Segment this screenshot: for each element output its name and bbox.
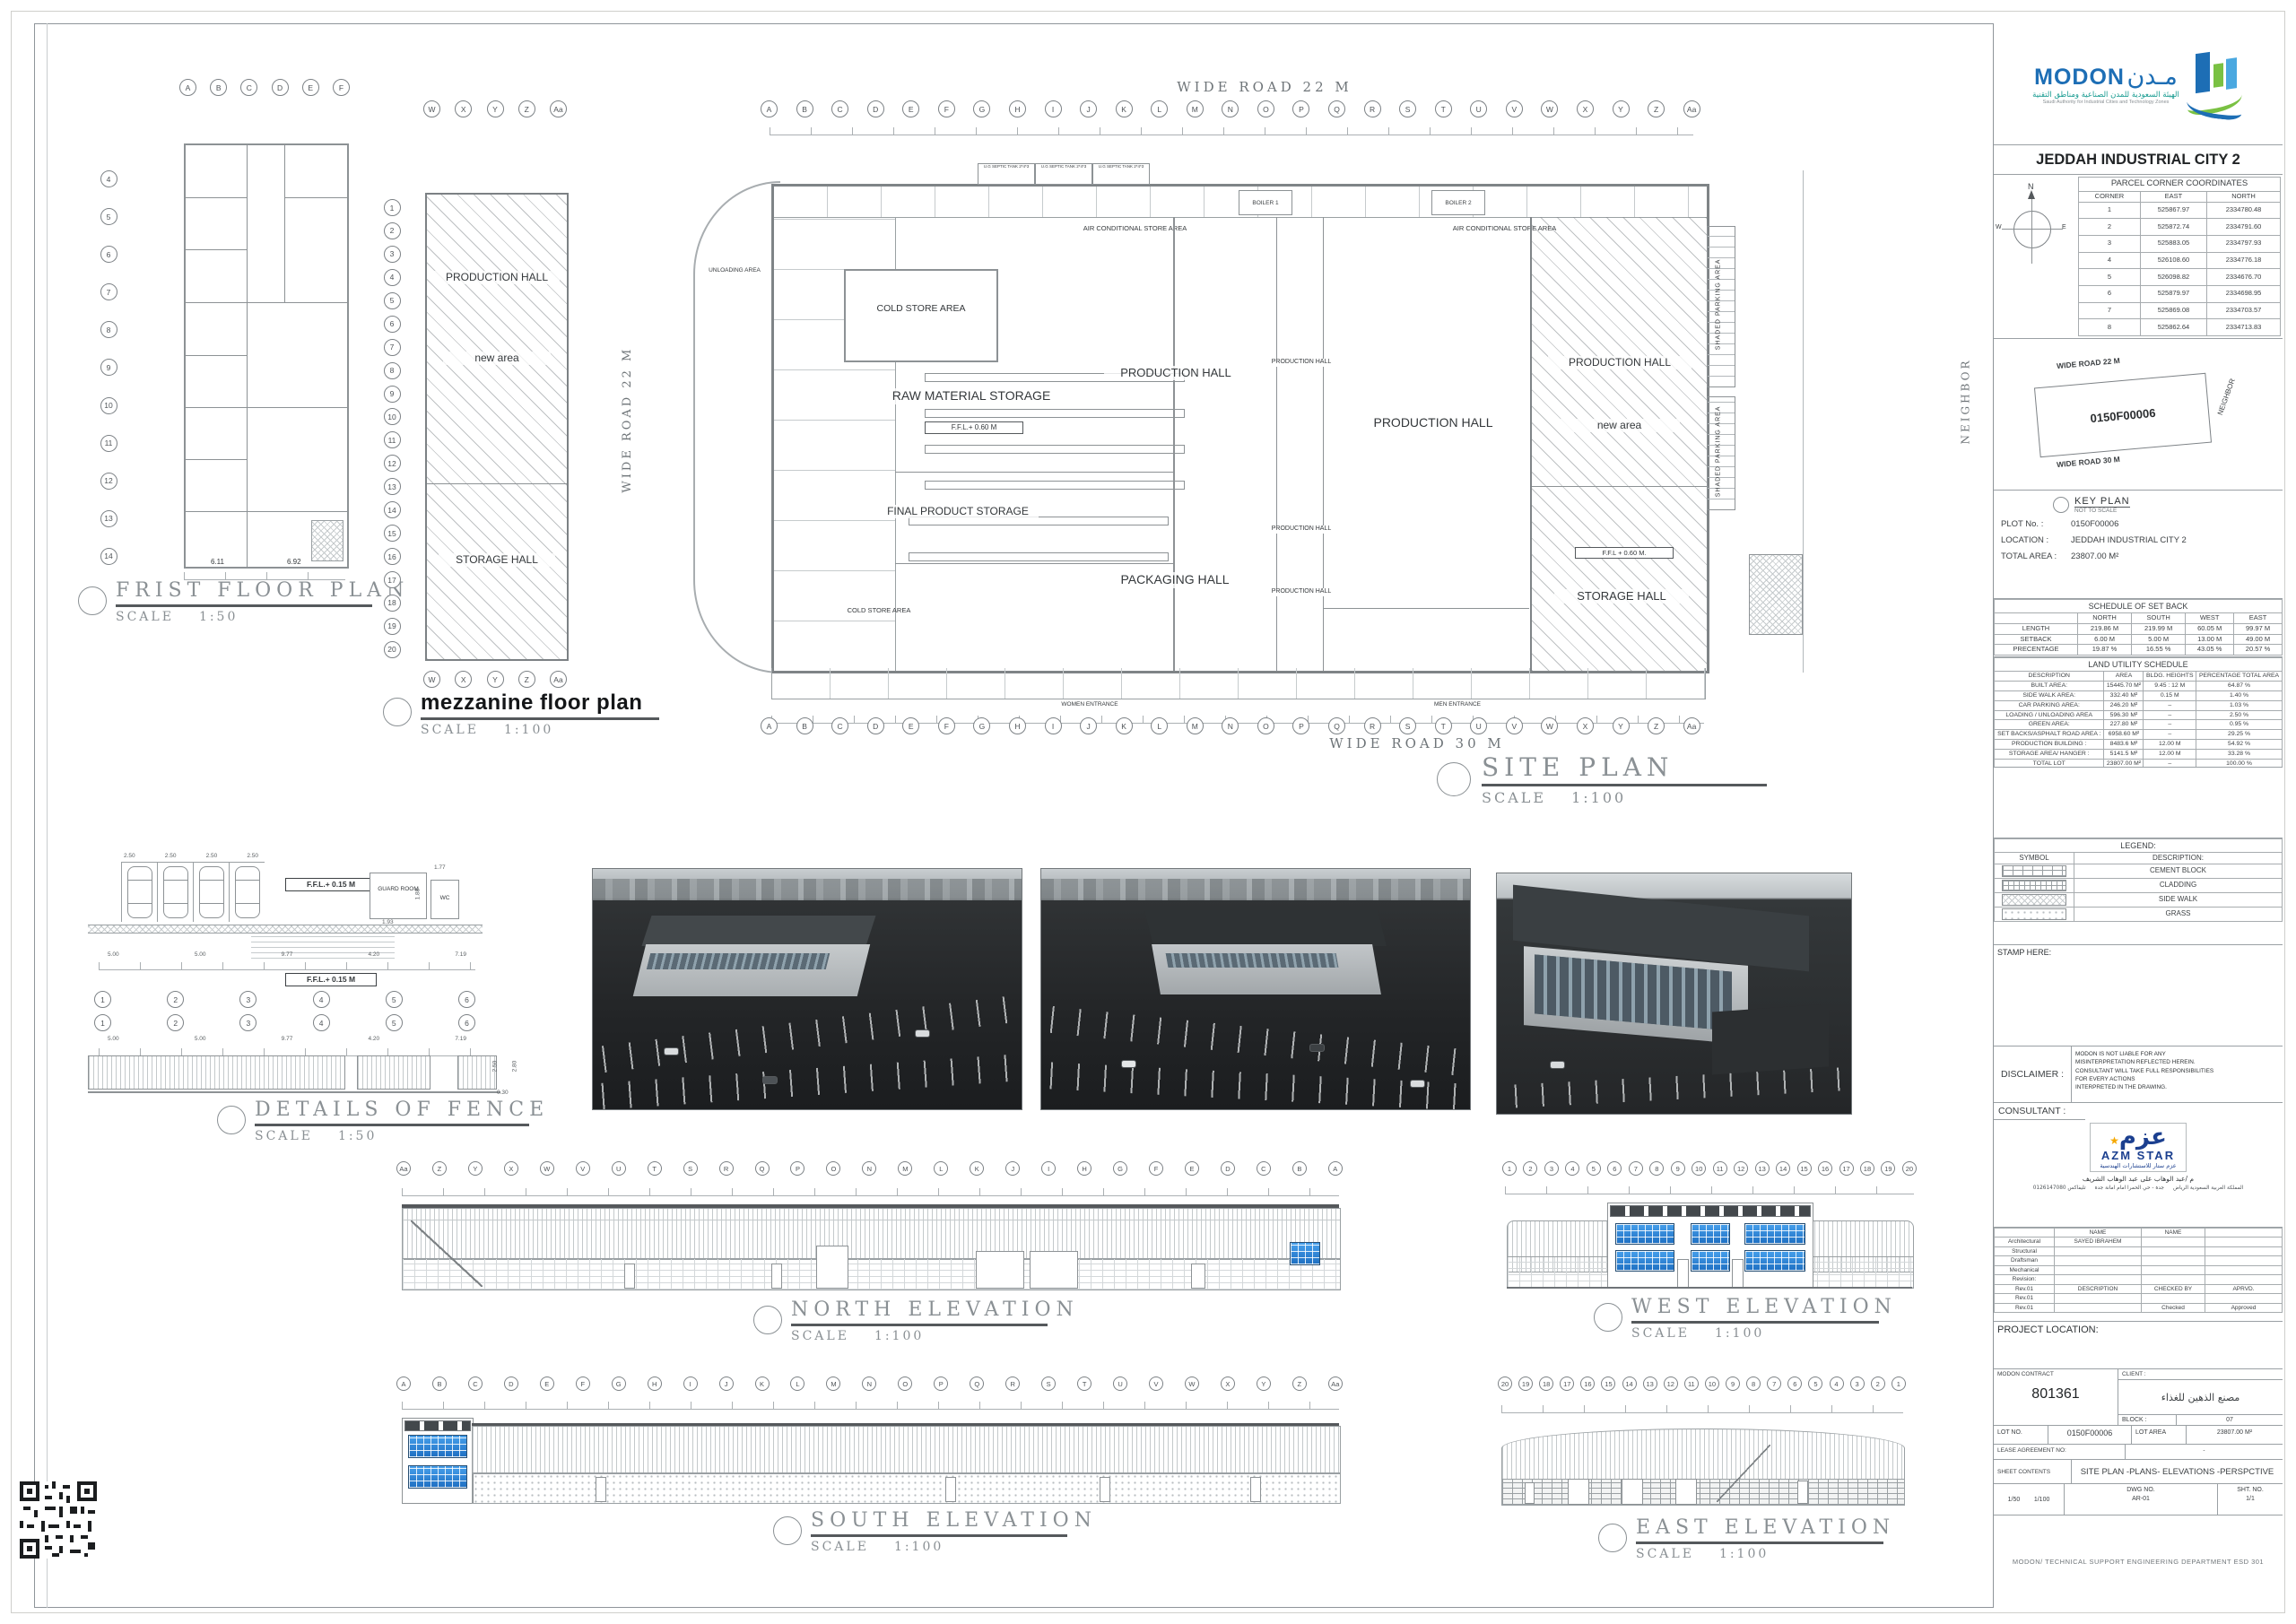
dwg-no-label: DWG NO. xyxy=(2065,1487,2217,1493)
mezz-storage-hall-label: STORAGE HALL xyxy=(439,553,555,567)
coordinate-row: 2525872.742334791.60 xyxy=(2079,219,2281,236)
boiler2-room: BOILER 2 xyxy=(1431,190,1485,215)
blank-section xyxy=(1994,768,2283,838)
land-utility-row: SIDE WALK AREA:332.40 M²0.15 M1.40 % xyxy=(1995,690,2283,700)
packaging-hall-label: PACKAGING HALL xyxy=(1090,572,1260,588)
coordinate-row: 7525869.082334703.57 xyxy=(2079,302,2281,319)
mezz-new-area-label: new area xyxy=(443,352,551,365)
modon-wordmark: MODON xyxy=(2034,65,2125,90)
storage-ffl: F.F.L + 0.60 M. xyxy=(1575,547,1674,559)
west-dim-line xyxy=(1505,1186,1914,1194)
south-building xyxy=(402,1418,1339,1504)
siteplan-hatched-band: PRODUCTION HALL new area F.F.L + 0.60 M.… xyxy=(1530,217,1709,671)
sht-no-label: SHT. NO. xyxy=(2218,1487,2283,1493)
panel xyxy=(976,1251,1024,1289)
siteplan-hatch-box xyxy=(1749,554,1803,635)
first-floor-plan-body xyxy=(184,143,349,569)
north-elevation-title: NORTH ELEVATION SCALE1:100 xyxy=(743,1300,1048,1343)
fence-title: DETAILS OF FENCE SCALE1:50 xyxy=(206,1100,529,1143)
lot-row: LOT NO. 0150F00006 LOT AREA 23807.00 M² xyxy=(1994,1426,2283,1445)
render-parking-lines xyxy=(1496,1066,1852,1109)
land-utility-row: BUILT AREA:15445.70 M²9.45 : 12 M64.87 % xyxy=(1995,682,2283,691)
final-product-label: FINAL PRODUCT STORAGE xyxy=(877,505,1039,518)
mezzanine-plan-title: mezzanine floor plan SCALE1:100 xyxy=(372,692,659,737)
raw-material-ffl: F.F.L.+ 0.60 M xyxy=(925,421,1023,434)
door xyxy=(596,1477,606,1502)
modon-contract-value: 801361 xyxy=(1994,1386,2118,1403)
names-section: NAMENAME ArchitecturalSAYED IBRAHEM Stru… xyxy=(1994,1228,2283,1322)
render-roof xyxy=(1144,910,1387,946)
mezz-production-hall-label: PRODUCTION HALL xyxy=(434,271,560,284)
neighbor-label: NEIGHBOR xyxy=(1960,352,1973,451)
legend-cement-block-swatch xyxy=(2002,865,2066,877)
panel xyxy=(816,1246,848,1289)
door xyxy=(945,1477,956,1502)
client-value: مصنع الذهين للغذاء xyxy=(2118,1380,2283,1414)
east-dim-line xyxy=(1501,1405,1903,1413)
east-stair xyxy=(1717,1445,1770,1502)
key-plan-road-bottom: WIDE ROAD 30 M xyxy=(2057,455,2120,469)
key-plan-info: KEY PLAN NOT TO SCALE PLOT No. :0150F000… xyxy=(1994,491,2283,599)
fence-dims-1: 5.005.009.774.207.19 xyxy=(108,951,466,958)
fence-dims-2: 5.005.009.774.207.19 xyxy=(108,1036,466,1042)
shaded-parking-strip-2: SHADED PARKING AREA xyxy=(1707,396,1735,510)
siteplan-road-bottom: WIDE ROAD 30 M xyxy=(1291,735,1543,752)
legend-grass-swatch xyxy=(2002,908,2066,920)
modon-wordmark-arabic: مـدن xyxy=(2126,63,2177,91)
client-label: CLIENT : xyxy=(2118,1369,2283,1380)
west-building xyxy=(1507,1203,1912,1289)
west-grid: 1234567891011121314151617181920 xyxy=(1502,1161,1917,1176)
car xyxy=(127,866,152,918)
key-plan-drawing: 0150F00006 WIDE ROAD 22 M WIDE ROAD 30 M… xyxy=(1994,339,2283,491)
ac-store-label-1: AIR CONDITIONAL STORE AREA xyxy=(1070,224,1200,232)
men-entrance-label: MEN ENTRANCE xyxy=(1422,701,1493,708)
contract-client-section: MODON CONTRACT 801361 CLIENT : مصنع الذه… xyxy=(1994,1369,2283,1426)
first-floor-plan-title: FRIST FLOOR PLAN SCALE1:50 xyxy=(67,581,372,624)
window-glass xyxy=(408,1435,467,1458)
render-skyline xyxy=(1041,879,1470,900)
key-plan-road-top: WIDE ROAD 22 M xyxy=(2057,356,2120,370)
render-car xyxy=(916,1030,929,1037)
title-block: MODON مـدن الهيئة السعودية للمدن الصناعي… xyxy=(1993,23,2283,1608)
lease-value: - xyxy=(2126,1445,2283,1459)
lot-area-label: LOT AREA xyxy=(2132,1426,2187,1444)
production-hall-small-3: PRODUCTION HALL xyxy=(1257,588,1346,596)
cold-store-room: COLD STORE AREA xyxy=(844,269,998,362)
legend-grass-label: GRASS xyxy=(2074,907,2283,921)
legend-side-walk-swatch xyxy=(2002,894,2066,906)
window-glass xyxy=(1744,1250,1805,1272)
coordinate-row: 1525867.972334780.48 xyxy=(2079,202,2281,219)
sht-no-value: 1/1 xyxy=(2218,1496,2283,1502)
coordinate-row: 4526108.602334776.18 xyxy=(2079,252,2281,269)
shaded-parking-strip-1: SHADED PARKING AREA xyxy=(1707,226,1735,387)
sheet-contents-row: SHEET CONTENTS SITE PLAN -PLANS- ELEVATI… xyxy=(1994,1460,2283,1484)
modon-contract-label: MODON CONTRACT xyxy=(1994,1369,2118,1379)
ffplan-grid-numbers: 4567891011121314 xyxy=(100,170,117,565)
key-plan-neighbor: NEIGHBOR xyxy=(2216,378,2237,416)
fence-detail: 2.502.502.502.50 F.F.L.+ 0.15 M GUARD RO… xyxy=(72,847,556,1148)
rack xyxy=(925,481,1185,490)
render-car xyxy=(1310,1045,1324,1051)
south-dim-line xyxy=(402,1402,1339,1410)
sheet-contents-label: SHEET CONTENTS xyxy=(1994,1460,2072,1483)
modon-subtitle-english: Saudi Authority for Industrial Cities an… xyxy=(2032,100,2179,105)
raw-material-label: RAW MATERIAL STORAGE xyxy=(882,388,1061,404)
scale-b: 1/100 xyxy=(2034,1497,2050,1503)
render-wall xyxy=(1152,944,1381,994)
legend-table: LEGEND: SYMBOLDESCRIPTION: CEMENT BLOCK … xyxy=(1994,838,2283,922)
door xyxy=(771,1264,782,1289)
window-glass xyxy=(408,1465,467,1489)
lot-area-value: 23807.00 M² xyxy=(2187,1426,2283,1444)
fence-ffl-1: F.F.L.+ 0.15 M xyxy=(285,878,377,891)
project-title: JEDDAH INDUSTRIAL CITY 2 xyxy=(1994,145,2283,175)
legend-cement-block-label: CEMENT BLOCK xyxy=(2074,864,2283,878)
car xyxy=(235,866,260,918)
perspective-render-1 xyxy=(592,868,1022,1110)
rack xyxy=(925,445,1185,454)
fence-bubbles-2: 123456 xyxy=(94,1014,475,1031)
names-table: NAMENAME ArchitecturalSAYED IBRAHEM Stru… xyxy=(1994,1228,2283,1313)
siteplan-dim-top xyxy=(770,127,1693,135)
plot-no-label: PLOT No. : xyxy=(2001,519,2071,529)
door xyxy=(1797,1481,1808,1504)
esd-note: MODON/ TECHNICAL SUPPORT ENGINEERING DEP… xyxy=(1994,1515,2283,1608)
north-elevation: AaZYXWVUTSRQPONMLKJIHGFEDCBA NORTH ELEVA… xyxy=(386,1161,1359,1354)
mezzanine-plan-body: PRODUCTION HALL new area STORAGE HALL xyxy=(425,193,569,661)
boiler1-room: BOILER 1 xyxy=(1239,190,1292,215)
total-area-label: TOTAL AREA : xyxy=(2001,551,2071,561)
dwg-no-value: AR-01 xyxy=(2065,1496,2217,1502)
production-hall-label-3: PRODUCTION HALL xyxy=(1548,356,1692,369)
siteplan-road-top: WIDE ROAD 22 M xyxy=(1148,79,1381,96)
coordinates-section: N W E PARCEL CORNER COORDINATES CORNEREA… xyxy=(1994,175,2283,339)
key-plan-parcel: 0150F00006 xyxy=(2034,373,2212,457)
south-elevation: ABCDEFGHIJKLMNOPQRSTUVWXYZAa SOUTH ELEV xyxy=(386,1376,1359,1592)
total-area-value: 23807.00 M² xyxy=(2071,551,2275,561)
north-stair xyxy=(411,1220,483,1287)
setback-table: SCHEDULE OF SET BACK NORTHSOUTHWESTEAST … xyxy=(1994,599,2283,656)
ffplan-grid-letters: ABCDEF xyxy=(179,79,350,96)
window-glass xyxy=(1290,1242,1320,1265)
car xyxy=(163,866,188,918)
unloading-label: UNLOADING AREA xyxy=(706,267,763,274)
land-utility-row: CAR PARKING AREA:246.20 M²–1.03 % xyxy=(1995,700,2283,710)
legend-cladding-label: CLADDING xyxy=(2074,878,2283,892)
new-area-label: new area xyxy=(1559,419,1680,432)
fence-stall-dims: 2.502.502.502.50 xyxy=(124,853,258,859)
render-glazing xyxy=(647,953,830,969)
block-value: 07 xyxy=(2177,1415,2283,1425)
window-glass xyxy=(1744,1223,1805,1245)
project-location-section: PROJECT LOCATION: xyxy=(1994,1322,2283,1369)
render-glazing xyxy=(1166,953,1339,968)
siteplan-bottom-rooms xyxy=(771,668,1706,699)
render-car xyxy=(665,1048,678,1055)
door xyxy=(1100,1477,1110,1502)
render-car xyxy=(763,1077,777,1083)
guard-room-plan: GUARD ROOM WC 1.93 1.88 1.77 xyxy=(370,873,459,919)
coordinate-row: 3525883.052334797.93 xyxy=(2079,235,2281,252)
ffplan-dim-b: 6.92 xyxy=(287,558,301,567)
door xyxy=(1525,1482,1535,1504)
render-wall xyxy=(633,944,870,996)
disclaimer-section: DISCLAIMER : MODON IS NOT LIABLE FOR ANY… xyxy=(1994,1046,2283,1103)
south-elevation-title: SOUTH ELEVATION SCALE1:100 xyxy=(762,1511,1067,1554)
land-utility-row: PRODUCTION BUILDING :8483.6 M²12.00 M54.… xyxy=(1995,740,2283,750)
land-utility-row: SET BACKS/ASPHALT ROAD AREA :6958.60 M²–… xyxy=(1995,730,2283,740)
perspective-render-2 xyxy=(1040,868,1471,1110)
site-plan-title: SITE PLAN SCALE1:100 xyxy=(1426,755,1767,806)
fence-ffl-2: F.F.L.+ 0.15 M xyxy=(285,973,377,986)
location-value: JEDDAH INDUSTRIAL CITY 2 xyxy=(2071,535,2275,545)
plot-no-value: 0150F00006 xyxy=(2071,519,2275,529)
east-grid: 2019181716151413121110987654321 xyxy=(1498,1376,1906,1391)
east-elevation-title: EAST ELEVATION SCALE1:100 xyxy=(1587,1518,1883,1561)
compass-e-label: E xyxy=(2062,224,2066,230)
window-glass xyxy=(1615,1223,1674,1245)
lot-no-value: 0150F00006 xyxy=(2048,1426,2132,1444)
coordinate-row: 5526098.822334676.70 xyxy=(2079,269,2281,286)
panel xyxy=(1030,1251,1078,1289)
parcel-coordinates-table: PARCEL CORNER COORDINATES CORNEREASTNORT… xyxy=(2078,177,2281,336)
window-glass xyxy=(1691,1250,1730,1272)
ffplan-dim-a: 6.11 xyxy=(211,558,224,567)
render-truck-dock xyxy=(1712,1003,1829,1074)
fence-elevation: 2.50 2.80 0.30 xyxy=(88,1055,500,1093)
window-glass xyxy=(1691,1223,1730,1245)
ffplan-stair xyxy=(311,520,344,561)
storage-hall-label: STORAGE HALL xyxy=(1554,589,1689,604)
location-label: LOCATION : xyxy=(2001,535,2071,545)
septic-tanks: U.G SEPTIC TANK 2*4*3 U.G SEPTIC TANK 2*… xyxy=(978,163,1150,185)
scale-a: 1/50 xyxy=(2008,1497,2021,1503)
north-dim-line xyxy=(402,1188,1339,1196)
door xyxy=(1191,1264,1205,1289)
land-utility-row: STORAGE AREA/ HANGER :5141.5 M²12.00 M33… xyxy=(1995,749,2283,759)
siteplan-curved-road xyxy=(693,181,780,673)
block-label: BLOCK : xyxy=(2118,1415,2177,1425)
window-glass xyxy=(1615,1250,1674,1272)
door xyxy=(1677,1259,1689,1288)
rack xyxy=(909,552,1169,561)
qr-code xyxy=(20,1481,97,1559)
render-car xyxy=(1551,1062,1564,1068)
siteplan-grid-bottom: ABCDEFGHIJKLMNOPQRSTUVWXYZAa xyxy=(761,717,1700,734)
modon-logo-mark xyxy=(2188,53,2244,116)
coordinate-row: 8525862.642334713.83 xyxy=(2079,319,2281,336)
women-entrance-label: WOMEN ENTRANCE xyxy=(1054,701,1126,708)
production-hall-small-2: PRODUCTION HALL xyxy=(1257,525,1346,534)
land-utility-row: GREEN AREA:227.80 M²–0.95 % xyxy=(1995,720,2283,730)
door xyxy=(1568,1479,1589,1505)
mezz-grid-letters-top: WXYZAa xyxy=(423,100,567,117)
cold-store-label-2: COLD STORE AREA xyxy=(830,606,928,614)
south-grid: ABCDEFGHIJKLMNOPQRSTUVWXYZAa xyxy=(396,1376,1343,1391)
render-roof xyxy=(641,916,875,946)
mezz-grid-letters-bottom: WXYZAa xyxy=(423,671,567,688)
siteplan-grid-top: ABCDEFGHIJKLMNOPQRSTUVWXYZAa xyxy=(761,100,1700,117)
land-utility-row: TOTAL LOT23807.00 M²–100.00 % xyxy=(1995,759,2283,768)
stamp-section: STAMP HERE: xyxy=(1994,945,2283,1046)
door xyxy=(1732,1259,1744,1288)
mezz-grid-numbers: 1234567891011121314151617181920 xyxy=(384,199,400,658)
rack xyxy=(925,409,1185,418)
door xyxy=(1675,1479,1697,1505)
siteplan-building: BOILER 1 BOILER 2 AIR CONDITIONAL STORE … xyxy=(771,184,1709,673)
east-elevation: 2019181716151413121110987654321 EAST ELE… xyxy=(1489,1376,1915,1592)
key-plan-subtitle: NOT TO SCALE xyxy=(2074,508,2130,514)
sheet-margin-line xyxy=(47,23,48,1608)
azm-star-logo: ★عزم AZM STAR عزم ستار للاستشارات الهندس… xyxy=(2090,1123,2186,1172)
render-car xyxy=(1122,1061,1135,1067)
disclaimer-label: DISCLAIMER : xyxy=(1994,1046,2072,1102)
fence-parking-stalls xyxy=(121,862,265,922)
lease-label: LEASE AGREEMENT NO: xyxy=(1994,1445,2126,1459)
coordinate-row: 6525879.972334698.95 xyxy=(2079,285,2281,302)
render-car xyxy=(1411,1081,1424,1087)
production-hall-label-1: PRODUCTION HALL xyxy=(1104,366,1248,380)
car xyxy=(199,866,224,918)
legend-section: LEGEND: SYMBOLDESCRIPTION: CEMENT BLOCK … xyxy=(1994,838,2283,945)
setback-section: SCHEDULE OF SET BACK NORTHSOUTHWESTEAST … xyxy=(1994,599,2283,657)
footer-row: 1/50 1/100 DWG NO. AR-01 SHT. NO. 1/1 xyxy=(1994,1484,2283,1515)
production-hall-label-2: PRODUCTION HALL xyxy=(1348,415,1518,431)
drawing-sheet: ABCDEF 4567891011121314 6.11 6.92 FRIST … xyxy=(0,0,2296,1624)
north-building xyxy=(402,1204,1339,1289)
compass-rose xyxy=(2013,211,2051,248)
mezz-road-label: WIDE ROAD 22 M xyxy=(621,339,635,500)
legend-cladding-swatch xyxy=(2002,880,2066,891)
west-elevation: 1234567891011121314151617181920 xyxy=(1498,1161,1924,1354)
north-grid: AaZYXWVUTSRQPONMLKJIHGFEDCBA xyxy=(396,1161,1343,1176)
lot-no-label: LOT NO. xyxy=(1994,1426,2048,1444)
compass: N W E xyxy=(1994,175,2076,338)
perspective-render-3 xyxy=(1496,873,1852,1115)
key-plan-title: KEY PLAN xyxy=(2074,496,2130,508)
lease-row: LEASE AGREEMENT NO: - xyxy=(1994,1445,2283,1460)
door xyxy=(1622,1479,1643,1505)
fence-dim-line-1 xyxy=(99,962,475,970)
east-building xyxy=(1501,1423,1903,1506)
modon-subtitle-arabic: الهيئة السعودية للمدن الصناعية ومناطق ال… xyxy=(2032,91,2179,100)
fence-bubbles-1: 123456 xyxy=(94,991,475,1008)
compass-w-label: W xyxy=(1996,224,2002,230)
consultant-section: CONSULTANT : ★عزم AZM STAR عزم ستار للاس… xyxy=(1994,1103,2283,1228)
legend-side-walk-label: SIDE WALK xyxy=(2074,892,2283,907)
sheet-contents-value: SITE PLAN -PLANS- ELEVATIONS -PERSPCTIVE xyxy=(2072,1467,2283,1477)
door xyxy=(624,1264,635,1289)
fence-sidewalk xyxy=(88,925,483,934)
modon-logo: MODON مـدن الهيئة السعودية للمدن الصناعي… xyxy=(1994,23,2283,145)
land-utility-table: LAND UTILITY SCHEDULE DESCRIPTIONAREABLD… xyxy=(1994,657,2283,768)
door xyxy=(1250,1477,1261,1502)
consultant-name-arabic: م /عبد الوهاب على عبد الوهاب الشريف xyxy=(2083,1175,2194,1183)
west-elevation-title: WEST ELEVATION SCALE1:100 xyxy=(1583,1298,1879,1341)
production-hall-small-1: PRODUCTION HALL xyxy=(1257,359,1346,367)
land-utility-section: LAND UTILITY SCHEDULE DESCRIPTIONAREABLD… xyxy=(1994,657,2283,768)
land-utility-row: LOADING / UNLOADING AREA596.30 M²–2.50 % xyxy=(1995,710,2283,720)
render-skyline xyxy=(593,879,1022,900)
consultant-label: CONSULTANT : xyxy=(1994,1103,2085,1120)
